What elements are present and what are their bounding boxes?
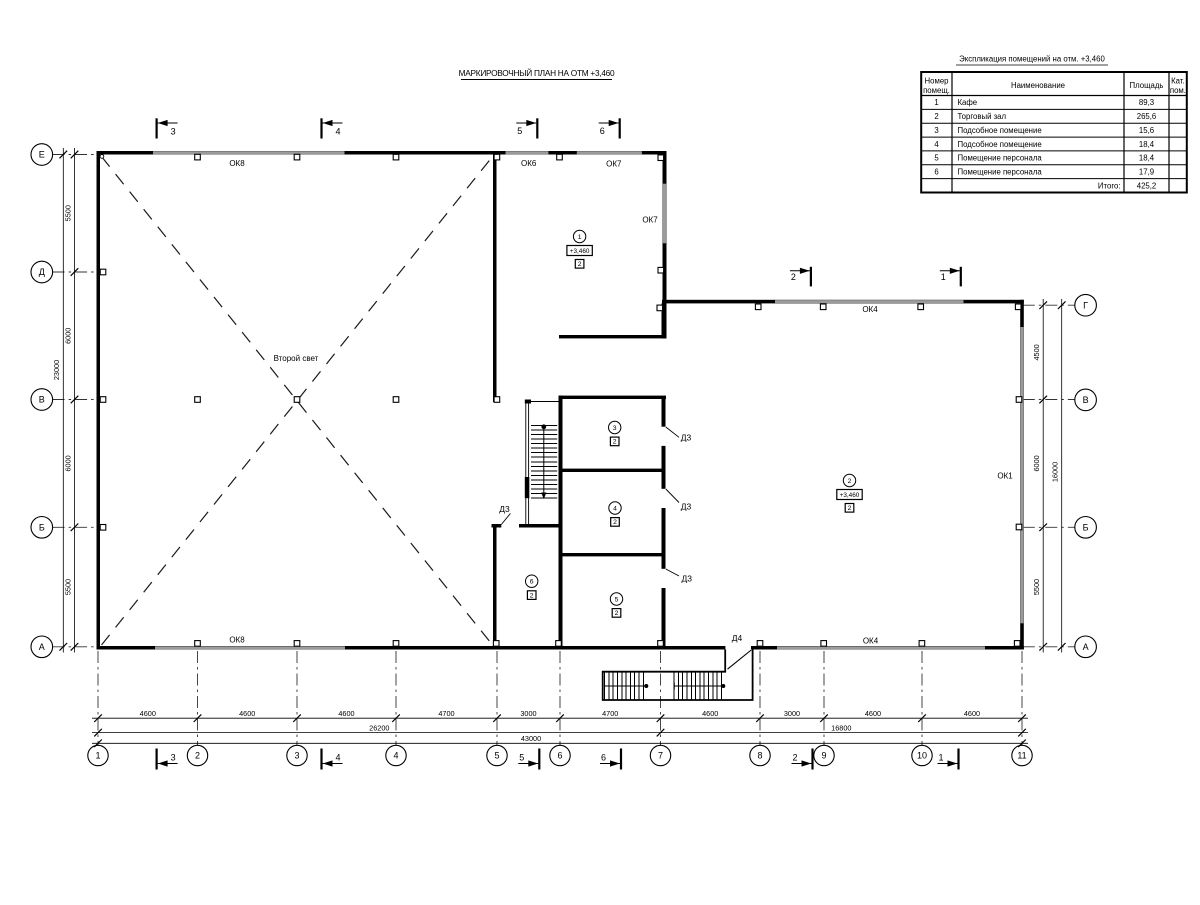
svg-text:43000: 43000 [521, 734, 541, 743]
svg-text:4: 4 [393, 751, 398, 761]
svg-text:Наименование: Наименование [1011, 81, 1065, 90]
svg-text:5: 5 [517, 126, 522, 136]
svg-text:ОК8: ОК8 [229, 636, 245, 645]
svg-text:Торговый зал: Торговый зал [958, 112, 1007, 121]
svg-text:4500: 4500 [1032, 344, 1041, 360]
svg-text:4: 4 [335, 753, 340, 763]
svg-text:89,3: 89,3 [1139, 98, 1154, 107]
svg-text:1: 1 [578, 234, 582, 241]
svg-text:В: В [39, 395, 45, 405]
svg-text:265,6: 265,6 [1137, 112, 1157, 121]
svg-text:4600: 4600 [140, 709, 156, 718]
svg-text:4600: 4600 [702, 709, 718, 718]
svg-text:10: 10 [917, 751, 927, 761]
svg-text:6: 6 [557, 751, 562, 761]
svg-text:ОК6: ОК6 [521, 159, 537, 168]
svg-text:А: А [1083, 642, 1089, 652]
svg-text:помещ.: помещ. [923, 86, 950, 95]
svg-text:5: 5 [615, 596, 619, 603]
svg-text:Д4: Д4 [732, 633, 743, 643]
svg-text:Помещение персонала: Помещение персонала [958, 154, 1043, 163]
svg-text:+3,460: +3,460 [570, 248, 590, 255]
svg-text:Номер: Номер [925, 77, 950, 86]
svg-text:Помещение персонала: Помещение персонала [958, 168, 1043, 177]
svg-text:18,4: 18,4 [1139, 140, 1155, 149]
svg-text:15,6: 15,6 [1139, 126, 1154, 135]
svg-text:1: 1 [95, 751, 100, 761]
svg-text:5: 5 [934, 154, 939, 163]
svg-text:Экспликация помещений на отм.: Экспликация помещений на отм. +3,460 [959, 55, 1105, 64]
svg-text:5: 5 [519, 753, 524, 763]
svg-text:пом.: пом. [1170, 86, 1186, 95]
svg-text:4: 4 [335, 127, 340, 137]
svg-text:Д3: Д3 [681, 574, 692, 584]
svg-text:3: 3 [934, 126, 938, 135]
svg-text:4600: 4600 [865, 709, 881, 718]
svg-text:А: А [39, 642, 45, 652]
svg-text:425,2: 425,2 [1137, 181, 1157, 190]
svg-text:2: 2 [848, 505, 852, 512]
svg-text:6000: 6000 [63, 455, 72, 471]
svg-text:3000: 3000 [520, 709, 536, 718]
svg-text:11: 11 [1017, 751, 1026, 761]
svg-text:Площадь: Площадь [1130, 81, 1164, 90]
svg-text:4600: 4600 [338, 709, 354, 718]
svg-text:2: 2 [615, 610, 619, 617]
svg-text:4: 4 [613, 505, 617, 512]
svg-text:ОК4: ОК4 [863, 637, 879, 646]
svg-text:18,4: 18,4 [1139, 154, 1155, 163]
svg-text:Подсобное помещение: Подсобное помещение [958, 140, 1042, 149]
svg-text:26200: 26200 [369, 723, 389, 732]
svg-text:2: 2 [530, 592, 534, 599]
svg-text:4700: 4700 [438, 709, 454, 718]
svg-text:2: 2 [613, 439, 617, 446]
svg-text:6000: 6000 [1032, 455, 1041, 471]
svg-text:1: 1 [934, 98, 938, 107]
svg-text:2: 2 [848, 478, 852, 485]
svg-text:6000: 6000 [63, 328, 72, 344]
svg-text:9: 9 [821, 751, 826, 761]
svg-text:6: 6 [601, 753, 606, 763]
svg-text:3000: 3000 [784, 709, 800, 718]
svg-text:6: 6 [600, 126, 605, 136]
svg-text:Подсобное помещение: Подсобное помещение [958, 126, 1042, 135]
svg-text:4600: 4600 [239, 709, 255, 718]
svg-text:Д3: Д3 [681, 433, 692, 443]
svg-text:16800: 16800 [831, 723, 851, 732]
svg-text:23000: 23000 [52, 360, 61, 380]
svg-text:4600: 4600 [964, 709, 980, 718]
svg-text:7: 7 [658, 751, 663, 761]
svg-text:16000: 16000 [1051, 462, 1060, 482]
svg-text:2: 2 [792, 753, 797, 763]
svg-text:Кафе: Кафе [958, 98, 978, 107]
svg-text:Второй свет: Второй свет [274, 354, 319, 363]
svg-text:Е: Е [39, 150, 45, 160]
svg-text:ОК4: ОК4 [862, 305, 878, 314]
svg-text:В: В [1083, 395, 1089, 405]
svg-text:8: 8 [757, 751, 762, 761]
svg-text:1: 1 [941, 272, 946, 282]
svg-text:3: 3 [171, 753, 176, 763]
svg-text:Итого:: Итого: [1098, 181, 1121, 190]
svg-text:ОК1: ОК1 [997, 472, 1013, 481]
svg-text:2: 2 [195, 751, 200, 761]
svg-text:2: 2 [613, 519, 617, 526]
svg-text:4: 4 [934, 140, 939, 149]
svg-text:1: 1 [938, 753, 943, 763]
svg-text:ОК8: ОК8 [229, 159, 245, 168]
svg-text:5500: 5500 [63, 205, 72, 221]
svg-text:5500: 5500 [1032, 579, 1041, 595]
svg-text:3: 3 [294, 751, 299, 761]
svg-text:Г: Г [1083, 300, 1088, 310]
svg-text:Б: Б [1083, 523, 1089, 533]
svg-text:3: 3 [613, 425, 617, 432]
svg-text:6: 6 [530, 579, 534, 586]
svg-text:4700: 4700 [602, 709, 618, 718]
svg-text:2: 2 [791, 272, 796, 282]
svg-text:Б: Б [39, 523, 45, 533]
svg-text:+3,460: +3,460 [840, 492, 860, 499]
svg-text:ОК7: ОК7 [606, 160, 622, 169]
svg-text:2: 2 [578, 261, 582, 268]
svg-text:МАРКИРОВОЧНЫЙ ПЛАН НА ОТМ +3,4: МАРКИРОВОЧНЫЙ ПЛАН НА ОТМ +3,460 [459, 67, 615, 78]
svg-text:5: 5 [494, 751, 499, 761]
svg-text:5500: 5500 [63, 579, 72, 595]
svg-text:Д: Д [39, 267, 45, 277]
svg-text:3: 3 [171, 127, 176, 137]
svg-text:ОК7: ОК7 [642, 216, 658, 225]
svg-text:Д3: Д3 [681, 502, 692, 512]
svg-text:17,9: 17,9 [1139, 168, 1154, 177]
svg-text:2: 2 [934, 112, 938, 121]
svg-text:Д3: Д3 [499, 504, 510, 514]
svg-text:6: 6 [934, 168, 938, 177]
svg-text:Кат.: Кат. [1171, 77, 1185, 86]
